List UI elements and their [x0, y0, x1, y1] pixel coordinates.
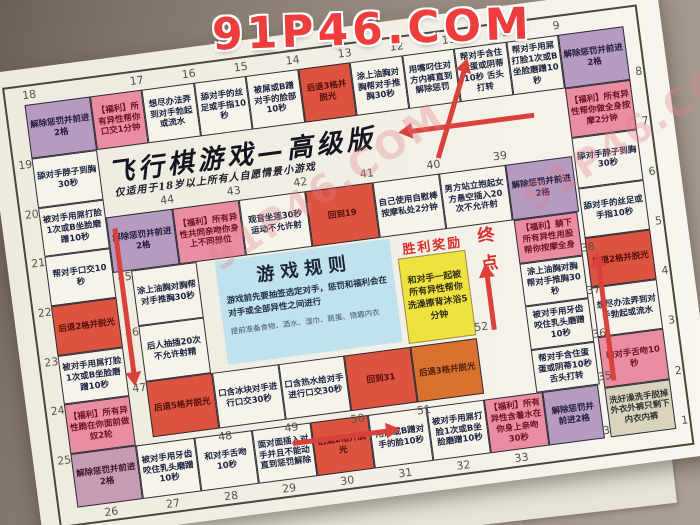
cell-text: 涂上油胸对胸帮对手推胸30秒: [136, 279, 198, 308]
board-cell: 被屌或B蹭对手的脸部10秒14: [246, 69, 305, 129]
cell-number: 39: [492, 150, 507, 163]
cell-text: 和对手舌吻10秒: [199, 447, 254, 475]
cell-number: 16: [181, 68, 196, 81]
cell-text: 口含冰块对手进行口交30秒: [217, 382, 280, 411]
cell-text: 用嘴叼住对方内裤直到解除惩罚: [406, 60, 456, 98]
board-cell: 后人抽插20次不允许射精46: [138, 318, 211, 382]
board-cell: 口含冰块对手进行口交30秒48: [212, 364, 286, 428]
cell-text: 被对手用屌打脸1次或B坐脸磨蹭10秒: [62, 356, 126, 396]
cell-number: 50: [350, 412, 365, 425]
cell-number: 43: [226, 185, 241, 198]
cell-text: 帮对手口交10秒: [49, 263, 111, 292]
victory-reward-box: 和对手一起被所有异性帮你洗澡擦背沐浴5分钟 52: [398, 250, 477, 344]
board-cell: 解除惩罚并前进2格18: [24, 97, 96, 159]
cell-text: 涂上油胸对胸帮对手推胸30秒: [523, 261, 585, 301]
cell-number: 21: [31, 257, 46, 270]
board-cell: 舔对手的丝足或手指10秒15: [194, 76, 253, 136]
cell-text: 解除惩罚并前进2格: [76, 462, 138, 491]
cell-text: 舔对手脖子到胸30秒: [36, 164, 98, 193]
board-cell: 【福利】所有异性含着水在你身上亲吻30秒33: [484, 392, 549, 453]
cell-number: 44: [160, 193, 175, 206]
cell-text: 口含热水给对手进行口交30秒: [283, 373, 346, 402]
cell-text: 【福利】所有异性含着水在你身上亲吻30秒: [488, 398, 546, 448]
cell-text: 被对手用屌打脸1次或B坐脸磨蹭10秒: [42, 208, 106, 248]
board-cell: 舔对手的丝足或手指10秒5: [578, 180, 650, 238]
cell-number: 19: [18, 159, 33, 172]
cell-text: 后退3格并脱光: [303, 79, 352, 107]
cell-number: 33: [514, 451, 529, 464]
cell-number: 8: [635, 65, 643, 77]
cell-number: 31: [398, 467, 413, 480]
cell-number: 51: [416, 404, 431, 417]
board-cell: 【福利】所有异性跪在你面前做奴2轮24: [64, 396, 136, 454]
board-cell: 解除惩罚并前进2格34: [542, 385, 605, 446]
cell-text: 后退2格并脱光: [58, 318, 116, 336]
cell-text: 男方站立抱起女方悬空插入20次不允许射: [443, 177, 508, 217]
cell-number: 32: [456, 459, 471, 472]
cell-text: 被对手用屌打脸1次或B坐脸磨蹭10秒: [431, 411, 487, 450]
board-cell: 解除惩罚并前进2格8: [558, 26, 630, 88]
board-cell: 后退2格并脱光30: [310, 415, 375, 476]
cell-number: 38: [580, 240, 595, 253]
board-cell: 涂上油胸对胸帮对手推胸30秒45: [131, 262, 204, 326]
cell-text: 解除惩罚并前进2格: [111, 226, 174, 256]
cell-number: 4: [661, 265, 669, 277]
board-cell: 男方站立抱起女方悬空插入20次不允许射39: [439, 165, 513, 229]
board-cell: 后退3格并脱光51: [411, 338, 485, 402]
cell-text: 舔对手的丝足或手指10秒: [198, 87, 248, 125]
cell-number: 5: [654, 215, 662, 227]
board-cell: 后退5格并脱光47: [146, 373, 220, 437]
cell-number: 9: [552, 20, 560, 32]
board-cell: 回到3150: [344, 347, 418, 411]
cell-text: 【福利】躺下所有异性用股帮你按摩全身: [517, 218, 579, 258]
board-cell: 被对手用牙齿咬住乳头磨蹭10秒27: [136, 438, 201, 499]
board-cell: 被对手用屌打脸1次或B坐脸磨蹭10秒23: [57, 347, 129, 405]
cell-number: 48: [218, 430, 233, 443]
victory-reward-text: 和对手一起被所有异性帮你洗澡擦背沐浴5分钟: [403, 268, 471, 326]
game-board-paper: 解除惩罚并前进2格18【福利】所有异性帮你口交1分钟17想尽办法弄到对手勃起或流…: [0, 0, 700, 525]
cell-number: 17: [129, 74, 144, 87]
cell-number: 29: [282, 482, 297, 495]
cell-number: 40: [426, 158, 441, 171]
cell-text: 用屌或B蹭对手的脸10秒: [373, 424, 428, 452]
board-cell: 后退3格并脱光13: [298, 62, 357, 122]
cell-text: 涂上油胸对胸帮对手推胸30秒: [354, 66, 404, 104]
cell-text: 后退5格并脱光: [153, 396, 211, 414]
game-board: 解除惩罚并前进2格18【福利】所有异性帮你口交1分钟17想尽办法弄到对手勃起或流…: [2, 4, 694, 525]
board-cell: 涂上油胸对胸帮对手推胸30秒12: [350, 55, 409, 115]
cell-text: 【福利】所有异性帮你口交1分钟: [94, 101, 144, 139]
cell-text: 【福利】所有异性跪在你面前做奴2轮: [68, 405, 132, 445]
cell-text: 后人抽插20次不允许射精: [144, 335, 206, 364]
cell-number: 26: [104, 505, 119, 518]
cell-text: 后退3格并脱光: [418, 361, 476, 379]
board-cell: 舔对手脖子到胸30秒19: [32, 150, 104, 208]
cell-text: 被屌或B蹭对手的脸部10秒: [250, 80, 300, 118]
board-cell: 后退2格并脱光22: [51, 298, 123, 356]
cell-number: 18: [22, 89, 37, 102]
photo-background: 解除惩罚并前进2格18【福利】所有异性帮你口交1分钟17想尽办法弄到对手勃起或流…: [0, 0, 700, 525]
cell-number: 28: [223, 490, 238, 503]
cell-number: 52: [474, 321, 489, 334]
board-cell: 洗好澡洗手脱掉外衣外裤只剩下内衣内裤1: [604, 379, 676, 437]
inner-left-column: 涂上油胸对胸帮对手推胸30秒45后人抽插20次不允许射精46: [131, 262, 211, 382]
cell-number: 15: [233, 61, 248, 74]
cell-number: 22: [37, 306, 52, 319]
cell-number: 1: [681, 414, 689, 426]
cell-number: 27: [165, 497, 180, 510]
board-cell: 帮对手含住蛋蛋或阴蒂10秒舌头打转35: [531, 341, 600, 392]
cell-number: 20: [24, 208, 39, 221]
cell-number: 2: [674, 364, 682, 376]
board-cell: 帮对手口交10秒21: [44, 249, 116, 307]
cell-text: 舔对手的丝足或手指10秒: [583, 194, 645, 223]
board-cell: 被对手用屌打脸1次或B坐脸磨蹭10秒32: [426, 400, 491, 461]
board-cell: 想尽办法弄到对手勃起或流水16: [142, 83, 201, 143]
cell-number: 6: [648, 165, 656, 177]
board-cell: 口含热水给对手进行口交30秒49: [278, 356, 352, 420]
cell-number: 23: [44, 356, 59, 369]
outer-bottom-left-corner: 解除惩罚并前进2格2625: [70, 446, 142, 508]
board-cell: 【福利】所有异性帮你口交1分钟17: [90, 90, 149, 150]
board-cell: 解除惩罚并前进2格2625: [70, 446, 142, 508]
cell-text: 洗好澡洗手脱掉外衣外裤只剩下内衣内裤: [608, 388, 672, 428]
cell-number: 49: [284, 421, 299, 434]
cell-text: 解除惩罚并前进2格: [30, 113, 92, 142]
cell-text: 想尽办法弄到对手勃起或流水: [146, 94, 196, 132]
cell-number: 30: [340, 474, 355, 487]
cell-number: 24: [50, 405, 65, 418]
board-cell: 被对手用屌打脸1次或B坐脸磨蹭10秒20: [38, 199, 110, 257]
cell-text: 被对手用牙齿咬住乳头磨蹭10秒: [529, 304, 591, 344]
cell-text: 帮对手含住蛋蛋或阴蒂10秒舌头打转: [534, 347, 596, 387]
cell-number: 3: [667, 314, 675, 326]
cell-text: 被对手用牙齿咬住乳头磨蹭10秒: [140, 449, 196, 488]
board-cell: 自己使用自慰棒按摩私处2分钟40: [372, 174, 446, 238]
cell-text: 自己使用自慰棒按摩私处2分钟: [377, 191, 440, 221]
cell-text: 解除惩罚并前进2格: [563, 43, 625, 72]
cell-number: 25: [57, 454, 72, 467]
cell-text: 回到31: [366, 372, 396, 387]
cell-text: 解除惩罚并前进2格: [547, 401, 599, 429]
